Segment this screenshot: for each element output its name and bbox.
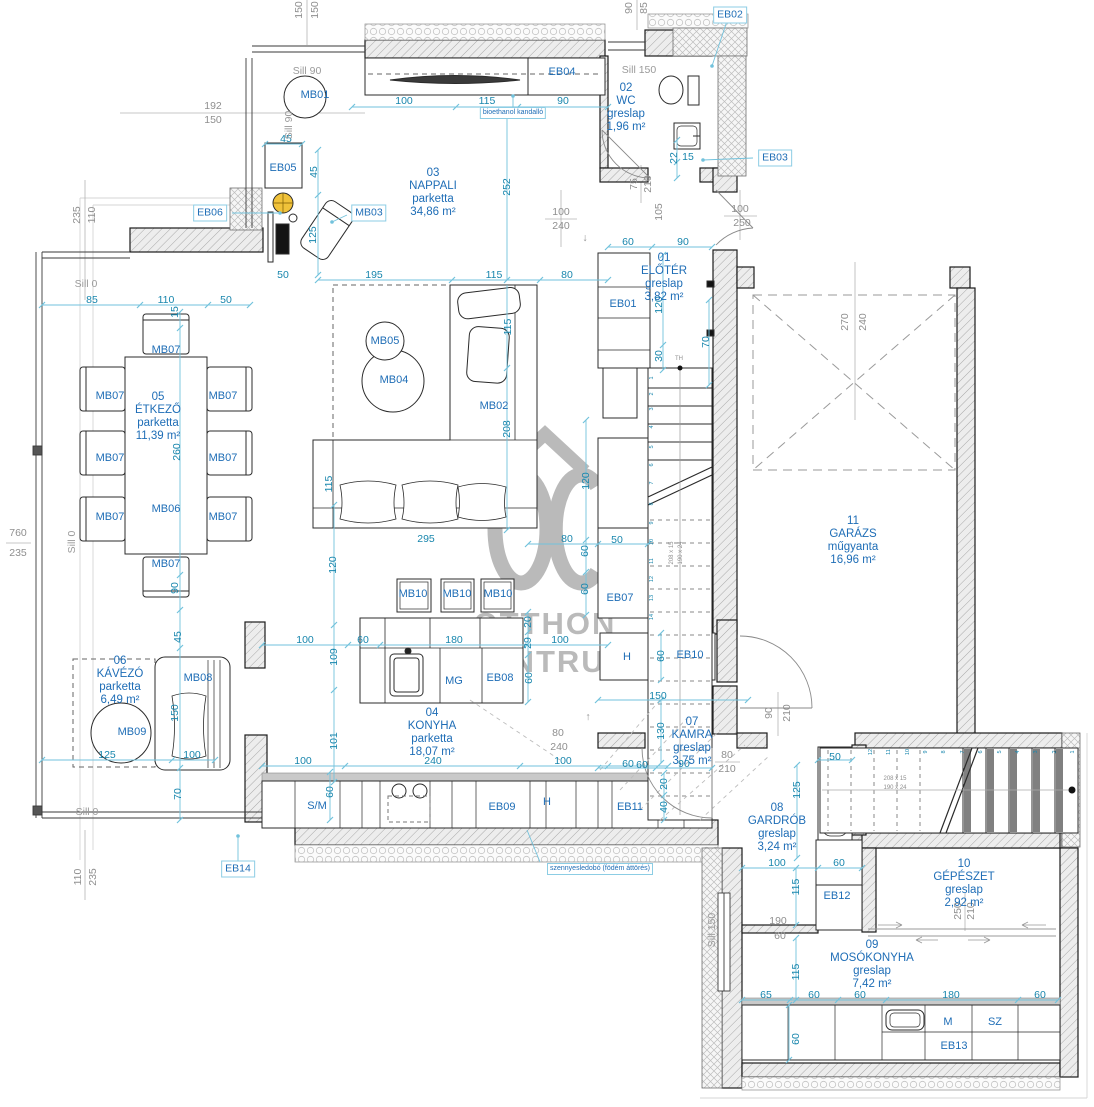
staircase-upper — [648, 366, 712, 821]
floorplan-drawing: OTTHON CENTRUM — [0, 0, 1094, 1107]
staircase-lower — [820, 748, 1078, 833]
floorplan-canvas: OTTHON CENTRUM — [0, 0, 1094, 1107]
cafe-corner — [73, 657, 230, 770]
furniture — [80, 58, 1060, 1060]
